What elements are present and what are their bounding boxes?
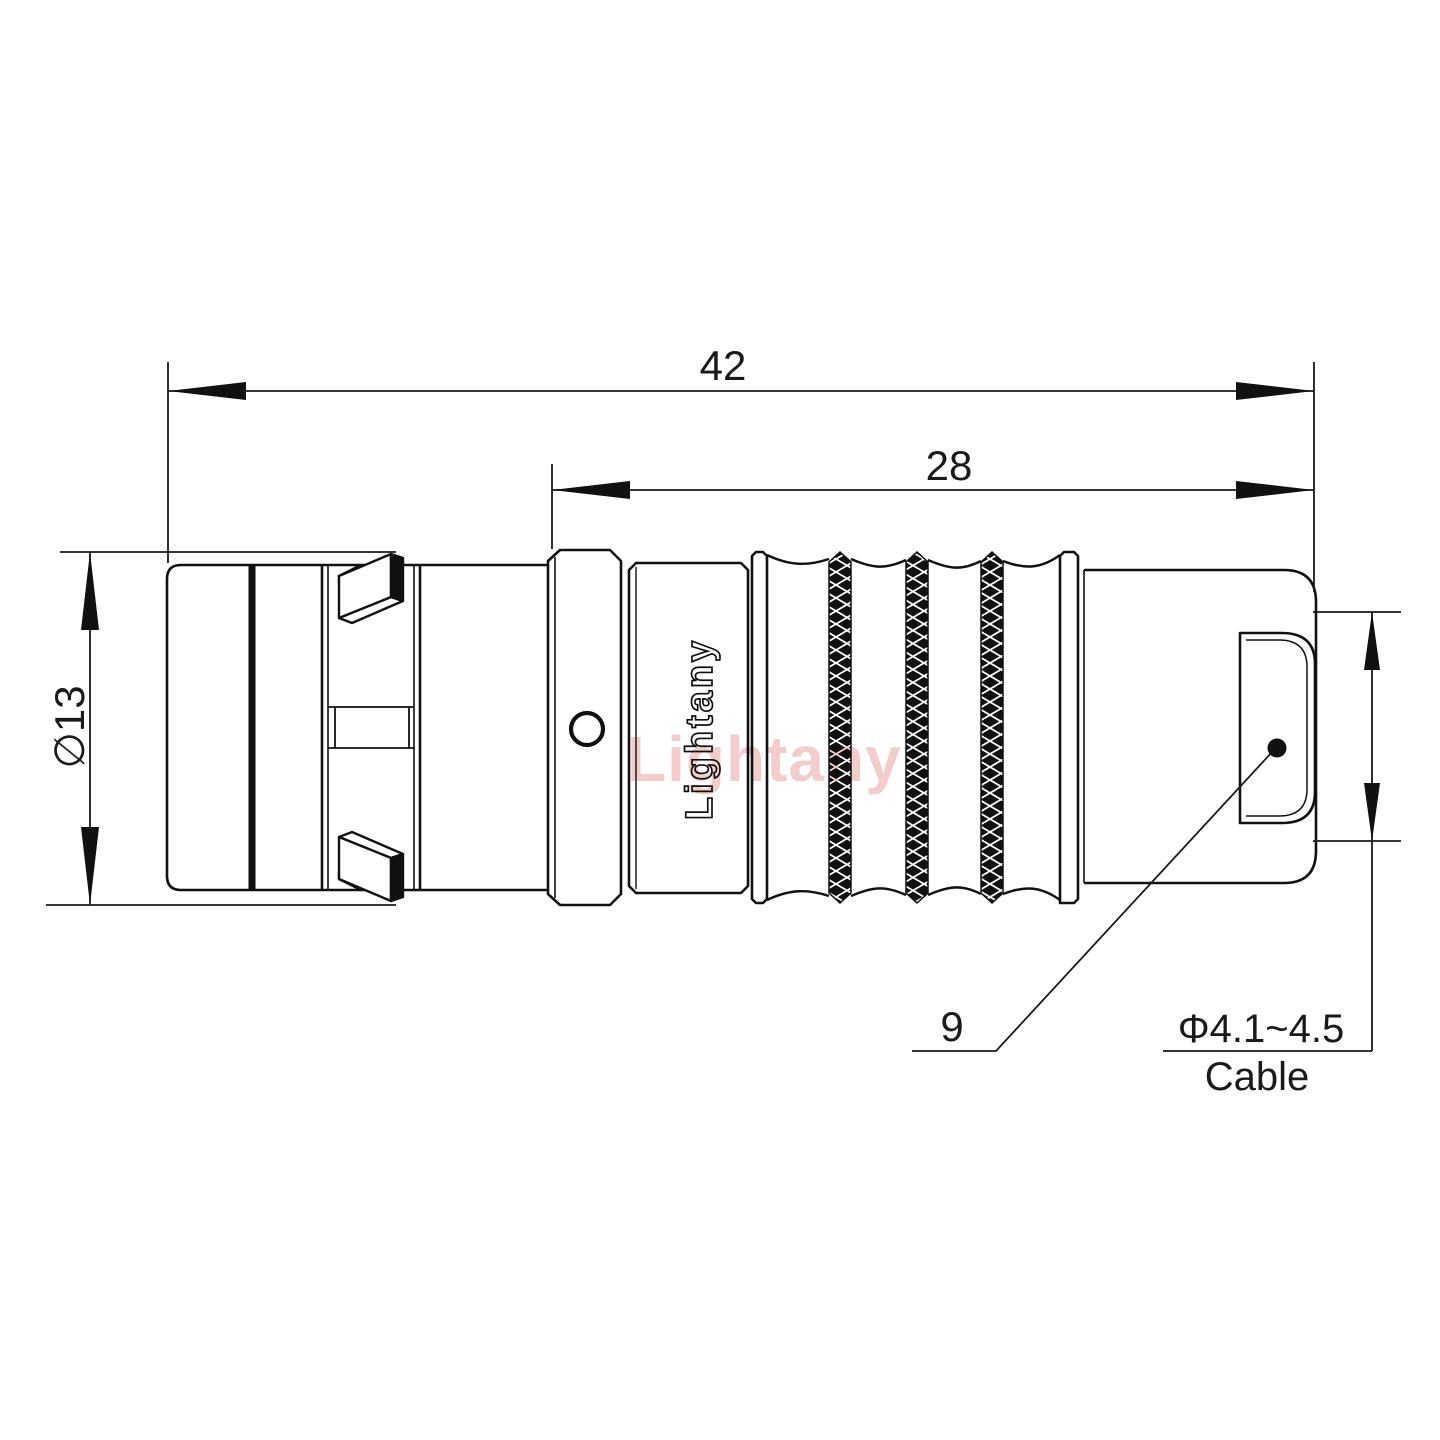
knurl-strip (906, 552, 928, 903)
plug-barrel (167, 565, 322, 890)
leader-dot (1268, 739, 1287, 758)
dim-rear-length: 28 (926, 442, 973, 489)
dim-nut-size: 9 (940, 1003, 963, 1050)
knurl-strip (981, 552, 1003, 903)
watermark-text: Lightany (627, 723, 902, 795)
latch-window (328, 707, 414, 748)
dim-body-diameter: ∅13 (46, 685, 93, 768)
dim-overall-length: 42 (700, 342, 747, 389)
cable-boot (1240, 633, 1315, 823)
dimension-arrows (81, 382, 1380, 905)
cable-boot-inner (1246, 640, 1307, 816)
connector-drawing: Lightany 42 28 ∅13 9 (0, 0, 1440, 1440)
cable-end-section (1084, 570, 1316, 883)
technical-drawing-canvas: Lightany 42 28 ∅13 9 (0, 0, 1440, 1440)
dim-cable-diameter: Φ4.1~4.5 (1178, 1007, 1344, 1051)
collar-hole (571, 713, 603, 745)
cable-label: Cable (1205, 1055, 1310, 1099)
knurl-shoulder-right (1060, 552, 1078, 903)
